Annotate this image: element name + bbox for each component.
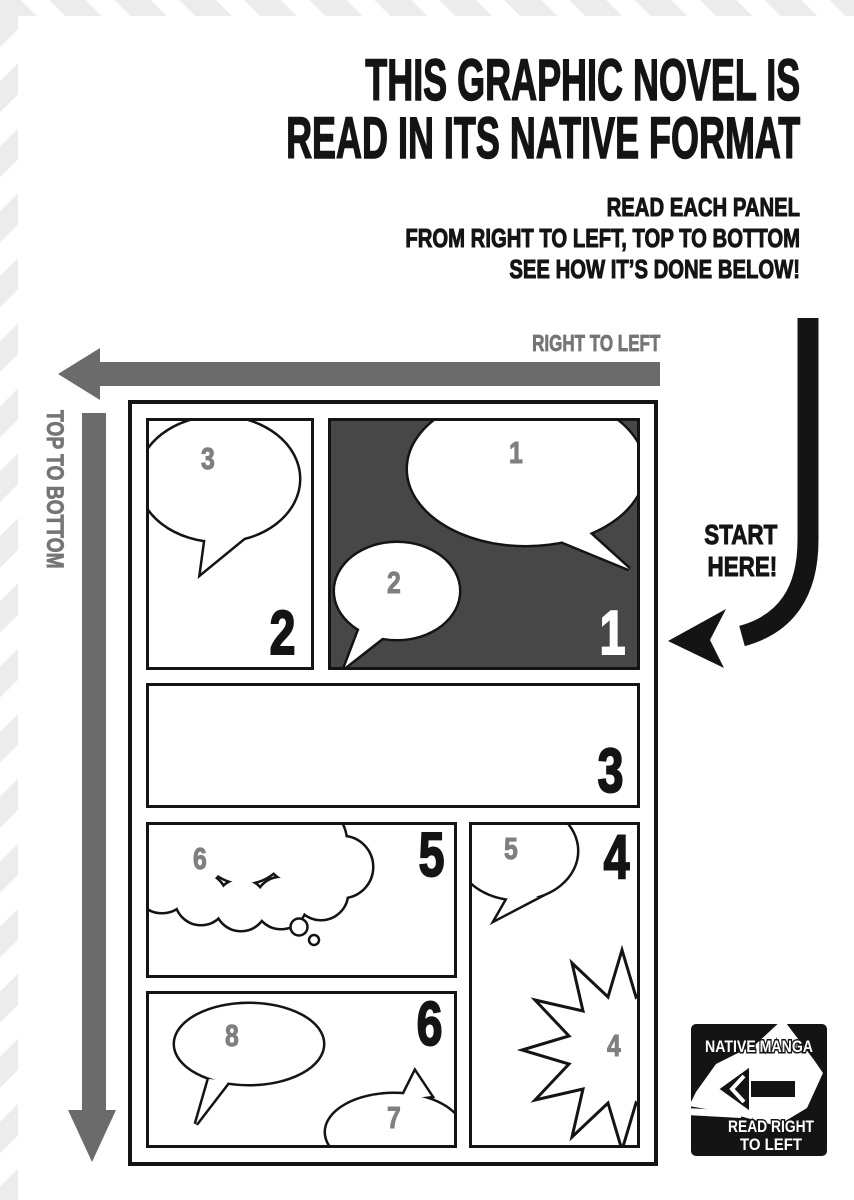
native-manga-badge: NATIVE MANGA READ RIGHT TO LEFT <box>686 1016 836 1164</box>
start-here-curved-arrow-icon <box>650 300 830 680</box>
page-title-line2: READ IN ITS NATIVE FORMAT <box>286 110 800 168</box>
comic-panel-6: 8 6 7 <box>146 991 457 1148</box>
top-to-bottom-arrow-icon <box>58 405 128 1175</box>
bubble-order-number: 7 <box>387 1102 401 1133</box>
subtitle-line2: FROM RIGHT TO LEFT, TOP TO BOTTOM <box>405 223 800 254</box>
page-title-line1: THIS GRAPHIC NOVEL IS <box>286 52 800 110</box>
bubble-order-number: 8 <box>225 1020 239 1051</box>
hazard-stripes-top <box>0 0 854 16</box>
panel-1-bubbles <box>331 421 637 667</box>
badge-caption-line1: READ RIGHT <box>728 1117 814 1136</box>
badge-caption-line2: TO LEFT <box>740 1135 803 1154</box>
comic-panel-4: 5 4 4 <box>469 822 640 1148</box>
subtitle-line3: SEE HOW IT’S DONE BELOW! <box>405 254 800 285</box>
bubble-order-number: 2 <box>387 567 401 598</box>
panel-order-number: 2 <box>269 603 295 665</box>
page-subtitle: READ EACH PANEL FROM RIGHT TO LEFT, TOP … <box>405 192 800 285</box>
hazard-stripes-left <box>0 16 18 1200</box>
panel-order-number: 3 <box>597 741 623 803</box>
bubble-order-number: 5 <box>504 833 518 864</box>
badge-title: NATIVE MANGA <box>705 1037 813 1056</box>
subtitle-line1: READ EACH PANEL <box>405 192 800 223</box>
bubble-order-number: 4 <box>607 1030 621 1061</box>
thought-dot <box>309 935 319 945</box>
bubble-order-number: 3 <box>201 443 215 474</box>
instruction-page: THIS GRAPHIC NOVEL IS READ IN ITS NATIVE… <box>0 0 854 1200</box>
thought-dot <box>291 919 308 936</box>
page-title: THIS GRAPHIC NOVEL IS READ IN ITS NATIVE… <box>286 52 800 168</box>
panel-order-number: 4 <box>603 827 629 889</box>
bubble-order-number: 1 <box>509 437 523 468</box>
comic-panel-3: 3 <box>146 683 640 808</box>
comic-page-demo: 1 2 1 3 2 3 <box>128 400 658 1166</box>
bubble-order-number: 6 <box>193 843 207 874</box>
comic-panel-1: 1 2 1 <box>328 418 640 670</box>
panel-order-number: 6 <box>416 994 442 1056</box>
panel-order-number: 1 <box>599 603 625 665</box>
comic-panel-2: 3 2 <box>146 418 314 670</box>
panel-6-bubbles <box>149 994 454 1145</box>
comic-panel-5: 6 5 <box>146 822 457 978</box>
panel-order-number: 5 <box>418 825 444 887</box>
